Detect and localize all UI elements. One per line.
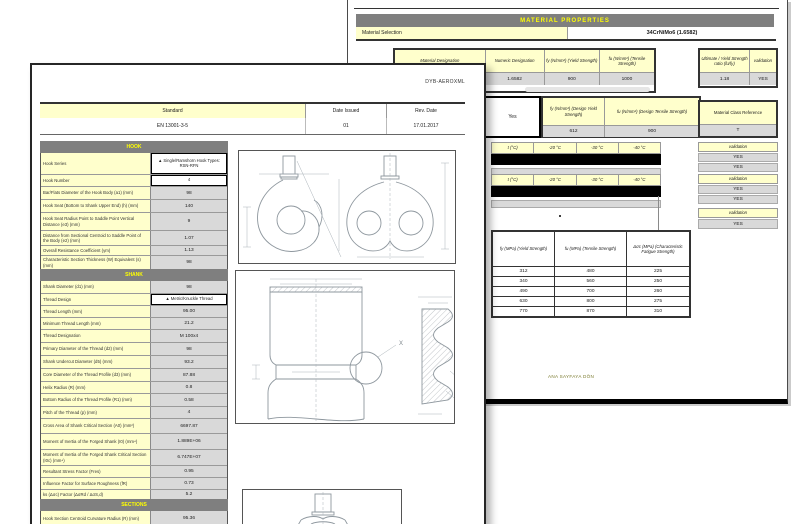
rev-date-value: 17.01.2017 [387, 118, 465, 134]
param-value: 0.8 [151, 382, 227, 393]
validation-label: validation [698, 208, 778, 218]
param-value: 4 [151, 407, 227, 418]
param-value: 140 [151, 200, 227, 212]
header-cell: Numeric Designation [486, 50, 545, 72]
table-header-row: fy (N/mm²) (Design Yield Strength) fu (N… [543, 98, 699, 126]
table-header-row: Ultimate / Yield Strength ratio (fu/fy) … [700, 50, 776, 73]
table-row: 770 870 310 [493, 307, 689, 316]
param-label: Bottom Radius of the Thread Profile (R1)… [41, 394, 151, 406]
param-label: Hook Seat (Bottom to Shank Upper End) (h… [41, 200, 151, 212]
param-value: 87.88 [151, 369, 227, 381]
selected-row-highlight [491, 154, 661, 165]
fatigue-cell: 275 [627, 297, 689, 306]
hook-series-dropdown[interactable]: ▲ Single/Ramshorn Hook Types: RSN-RFN [151, 153, 227, 174]
fatigue-strength-table: fy (MPa) (Yield Strength) fu (MPa) (Tens… [491, 230, 691, 318]
validation-value: YES [698, 153, 778, 162]
header-cell: -40 °C [619, 143, 660, 153]
fatigue-cell: 250 [627, 277, 689, 286]
header-cell: -30 °C [577, 143, 619, 153]
param-value: 5.2 [151, 490, 227, 499]
standard-value: EN 13001-3-5 [40, 118, 306, 134]
param-value: 98 [151, 256, 227, 269]
header-cell: t (°C) [492, 175, 534, 185]
header-cell: -20 °C [534, 175, 576, 185]
fatigue-cell: 560 [555, 277, 627, 286]
material-selection-label: Material Selection [356, 27, 568, 39]
param-value: 1.07 [151, 231, 227, 245]
table-row: Moment of Inertia of the Forged Shank (I… [41, 434, 227, 450]
param-label: Hook Section Centroid Curvature Radius (… [41, 511, 151, 524]
param-label: Moment of Inertia of the Forged Shank Cr… [41, 450, 151, 465]
table-header-row: t (°C) -20 °C -30 °C -40 °C [491, 174, 661, 186]
table-row: Influence Factor for Surface Roughness (… [41, 478, 227, 490]
fatigue-cell: 770 [493, 307, 555, 316]
table-value-row: 612 900 [543, 126, 699, 137]
section-band-shank: SHANK [40, 269, 228, 281]
validation-value: YES [698, 219, 778, 229]
header-cell: -20 °C [534, 143, 576, 153]
shank-parameter-table: Shank Diameter (d1) (mm) 98 Thread Desig… [40, 281, 228, 500]
table-row: Hook Series ▲ Single/Ramshorn Hook Types… [41, 153, 227, 175]
fatigue-cell: 870 [555, 307, 627, 316]
table-row: Resultant Stress Factor (Fres) 0.95 [41, 466, 227, 478]
param-label: Cross Area of Shank Critical Section (A0… [41, 419, 151, 433]
param-value: 0.58 [151, 394, 227, 406]
fatigue-cell: 630 [493, 297, 555, 306]
hook-number-dropdown[interactable]: 4 [151, 175, 227, 186]
table-row: Thread Designation M 100x4 [41, 330, 227, 343]
param-label: Hook Seat Radius Point to Saddle Point V… [41, 213, 151, 230]
value-cell: 1.6582 [486, 73, 545, 85]
validation-label: validation [698, 174, 778, 184]
material-class-label: Material Class Reference [700, 102, 776, 125]
material-selection-value: 34CrNiMo6 (1.6582) [568, 27, 776, 39]
table-footer-strip [491, 200, 661, 208]
param-value: M 100x4 [151, 330, 227, 342]
header-cell: fy (MPa) (Yield Strength) [493, 232, 555, 266]
document-code: DYB-AEROXML [345, 79, 465, 85]
header-cell: fu (N/mm²) (Design Tensile Strength) [605, 98, 699, 125]
param-label: Characteristic Section Thickness (W) Equ… [41, 256, 151, 269]
validation-box-1: validation YES YES [698, 142, 778, 172]
table-row: Shank Undercut Diameter (d5) (mm) 93.2 [41, 356, 227, 369]
table-row: Distance from Sectional Centroid to Sadd… [41, 231, 227, 246]
date-issued-value: 01 [306, 118, 387, 134]
param-label: Influence Factor for Surface Roughness (… [41, 478, 151, 489]
header-cell: validation [750, 50, 776, 72]
value-cell: 1.18 [700, 73, 750, 85]
param-label: Shank Undercut Diameter (d5) (mm) [41, 356, 151, 368]
detail-x-label: X [399, 341, 403, 347]
date-issued-label: Date Issued [306, 104, 387, 118]
bullet-mark [559, 215, 561, 217]
home-hyperlink[interactable]: ANA SAYFAYA DÖN [548, 374, 594, 379]
header-cell: fu (N/mm²) (Tensile Strength) [600, 50, 654, 72]
standard-label: Standard [40, 104, 306, 118]
table-row: 340 560 250 [493, 277, 689, 287]
table-value-row: 1.18 YES [700, 73, 776, 85]
param-label: Distance from Sectional Centroid to Sadd… [41, 231, 151, 245]
fatigue-cell: 800 [555, 297, 627, 306]
table-row: Helix Radius (R) (mm) 0.8 [41, 382, 227, 394]
fatigue-cell: 312 [493, 267, 555, 276]
section-band-sections: SECTIONS [40, 499, 228, 511]
header-cell: fy (N/mm²) (Design Yield Strength) [543, 98, 605, 125]
fatigue-cell: 225 [627, 267, 689, 276]
sheet-header-table: Standard Date Issued Rev. Date EN 13001-… [40, 102, 465, 135]
param-value: 6697.87 [151, 419, 227, 433]
fatigue-cell: 310 [627, 307, 689, 316]
sections-parameter-table: Hook Section Centroid Curvature Radius (… [40, 511, 228, 524]
table-row: Characteristic Section Thickness (W) Equ… [41, 256, 227, 269]
section-band-hook: HOOK [40, 141, 228, 153]
design-strength-table: fy (N/mm²) (Design Yield Strength) fu (N… [541, 96, 701, 138]
param-value: 98 [151, 281, 227, 293]
param-label: ks (Δσc) Factor (ΔσRd / ΔσS,d) [41, 490, 151, 499]
param-label: Hook Number [41, 175, 151, 186]
param-label: Thread Design [41, 294, 151, 305]
thread-profile-svg: X [236, 271, 454, 423]
param-value: 9 [151, 213, 227, 230]
param-label: Minimum Thread Length (mm) [41, 318, 151, 329]
validation-label: validation [698, 142, 778, 152]
material-properties-title: MATERIAL PROPERTIES [356, 14, 774, 27]
param-label: Helix Radius (R) (mm) [41, 382, 151, 393]
value-cell: 612 [543, 126, 605, 137]
table-row: 312 480 225 [493, 267, 689, 277]
material-confirm-dropdown[interactable]: Yes [484, 96, 541, 138]
table-header-row: t (°C) -20 °C -30 °C -40 °C [491, 142, 661, 154]
table-row: Primary Diameter of the Thread (d2) (mm)… [41, 343, 227, 356]
param-label: Primary Diameter of the Thread (d2) (mm) [41, 343, 151, 355]
validation-box-2: validation YES YES [698, 174, 778, 204]
table-row: Hook Seat (Bottom to Shank Upper End) (h… [41, 200, 227, 213]
table-row: Moment of Inertia of the Forged Shank Cr… [41, 450, 227, 466]
value-cell: YES [750, 73, 776, 85]
hook-front-view-drawing [242, 489, 402, 524]
header-cell: Δσc (MPa) (Characteristic Fatigue Streng… [627, 232, 689, 266]
validation-value: YES [698, 185, 778, 194]
table-row: Hook Seat Radius Point to Saddle Point V… [41, 213, 227, 231]
param-label: Core Diameter of the Thread Profile (d3)… [41, 369, 151, 381]
selected-row-highlight [491, 186, 661, 197]
table-row: Shank Diameter (d1) (mm) 98 [41, 281, 227, 294]
fatigue-cell: 700 [555, 287, 627, 296]
selection-shadow-bar [525, 87, 651, 92]
param-label: Bar/Flats Diameter of the Hook Body (a1)… [41, 187, 151, 199]
value-cell: 900 [545, 73, 600, 85]
impact-temp-table-2: t (°C) -20 °C -30 °C -40 °C [491, 174, 661, 208]
thread-design-dropdown[interactable]: ▲ Metric/Knuckle Thread [151, 294, 227, 305]
header-cell: fu (MPa) (Tensile Strength) [555, 232, 627, 266]
param-value: 21.2 [151, 318, 227, 329]
column-edge-line [658, 196, 659, 232]
cutoff-row-line [354, 8, 779, 9]
fatigue-cell: 480 [555, 267, 627, 276]
header-cell: fy (N/mm²) (Yield Strength) [545, 50, 600, 72]
table-row: Cross Area of Shank Critical Section (A0… [41, 419, 227, 434]
param-value: 1.889E+06 [151, 434, 227, 449]
param-value: 98 [151, 187, 227, 199]
param-value: 95.36 [151, 511, 227, 524]
ratio-validation-box: Ultimate / Yield Strength ratio (fu/fy) … [698, 48, 778, 88]
header-cell: -40 °C [619, 175, 660, 185]
table-value-row: EN 13001-3-5 01 17.01.2017 [40, 118, 465, 134]
table-row: 630 800 275 [493, 297, 689, 307]
hook-outline-svg [239, 151, 455, 263]
rev-date-label: Rev. Date [387, 104, 465, 118]
param-label: Shank Diameter (d1) (mm) [41, 281, 151, 293]
table-header-row: Standard Date Issued Rev. Date [40, 104, 465, 118]
fatigue-cell: 260 [627, 287, 689, 296]
validation-box-3: validation YES [698, 208, 778, 229]
material-selection-row: Material Selection 34CrNiMo6 (1.6582) [356, 27, 776, 41]
param-value: 98 [151, 343, 227, 355]
table-row: 490 700 260 [493, 287, 689, 297]
hook-parameter-table: Hook Series ▲ Single/Ramshorn Hook Types… [40, 153, 228, 270]
table-row: Minimum Thread Length (mm) 21.2 [41, 318, 227, 330]
param-value: 1.13 [151, 246, 227, 255]
header-cell: Ultimate / Yield Strength ratio (fu/fy) [700, 50, 750, 72]
table-row: Hook Section Centroid Curvature Radius (… [41, 511, 227, 524]
material-class-value: T [700, 125, 776, 136]
table-row: Bar/Flats Diameter of the Hook Body (a1)… [41, 187, 227, 200]
material-class-box: Material Class Reference T [698, 100, 778, 138]
param-label: Thread Designation [41, 330, 151, 342]
validation-value: YES [698, 195, 778, 204]
header-cell: t (°C) [492, 143, 534, 153]
desktop-background: MATERIAL PROPERTIES Material Selection 3… [0, 0, 800, 524]
impact-temp-table-1: t (°C) -20 °C -30 °C -40 °C [491, 142, 661, 176]
param-value: 6.747E+07 [151, 450, 227, 465]
header-cell: -30 °C [577, 175, 619, 185]
shank-thread-drawing: X [235, 270, 455, 424]
value-cell: 1000 [600, 73, 654, 85]
hook-front-view-svg [243, 490, 401, 524]
param-value: 0.95 [151, 466, 227, 477]
param-label: Resultant Stress Factor (Fres) [41, 466, 151, 477]
fatigue-cell: 340 [493, 277, 555, 286]
param-value: 93.2 [151, 356, 227, 368]
param-label: Thread Length (mm) [41, 306, 151, 317]
param-label: Hook Series [41, 153, 151, 174]
table-row: Pitch of the Thread (p) (mm) 4 [41, 407, 227, 419]
param-label: Moment of Inertia of the Forged Shank (I… [41, 434, 151, 449]
table-row: Thread Length (mm) 95.00 [41, 306, 227, 318]
table-row: Bottom Radius of the Thread Profile (R1)… [41, 394, 227, 407]
table-row: Hook Number 4 [41, 175, 227, 187]
table-row: ks (Δσc) Factor (ΔσRd / ΔσS,d) 5.2 [41, 490, 227, 499]
table-row: Core Diameter of the Thread Profile (d3)… [41, 369, 227, 382]
validation-value: YES [698, 163, 778, 172]
param-label: Overall Resistance Coefficient (γm) [41, 246, 151, 255]
table-row: Overall Resistance Coefficient (γm) 1.13 [41, 246, 227, 256]
value-cell: 900 [605, 126, 699, 137]
param-label: Pitch of the Thread (p) (mm) [41, 407, 151, 418]
fatigue-cell: 490 [493, 287, 555, 296]
param-value: 95.00 [151, 306, 227, 317]
param-value: 0.73 [151, 478, 227, 489]
table-header-row: fy (MPa) (Yield Strength) fu (MPa) (Tens… [493, 232, 689, 267]
hook-views-drawing [238, 150, 456, 264]
hook-data-page: DYB-AEROXML Standard Date Issued Rev. Da… [30, 63, 486, 524]
table-row: Thread Design ▲ Metric/Knuckle Thread [41, 294, 227, 306]
